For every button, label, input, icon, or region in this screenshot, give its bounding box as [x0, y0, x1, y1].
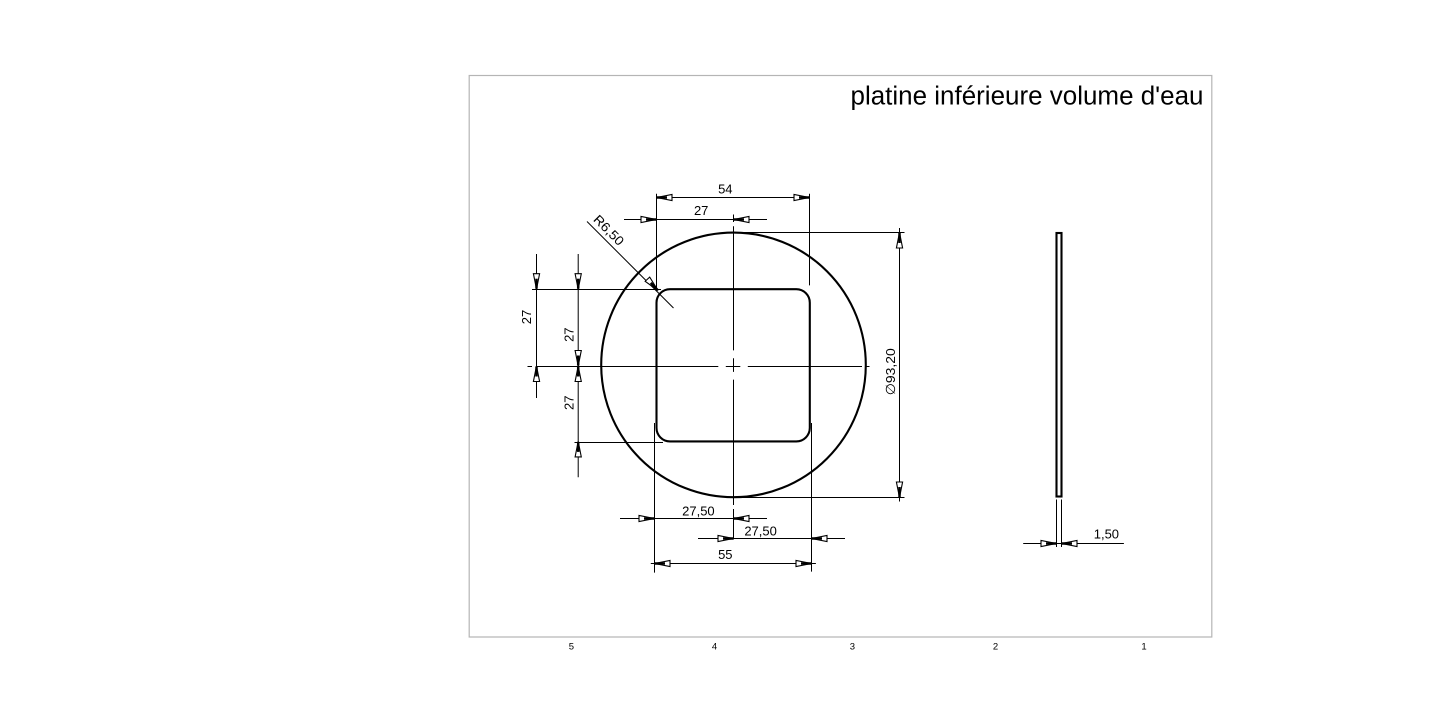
svg-text:5: 5	[569, 642, 574, 653]
svg-text:54: 54	[718, 182, 732, 197]
svg-text:27: 27	[562, 327, 577, 341]
svg-text:platine inférieure volume d'ea: platine inférieure volume d'eau	[851, 83, 1204, 111]
svg-text:1: 1	[1141, 642, 1146, 653]
svg-text:55: 55	[718, 547, 732, 562]
svg-text:4: 4	[712, 642, 717, 653]
svg-text:27: 27	[519, 310, 534, 324]
svg-text:1,50: 1,50	[1094, 527, 1119, 542]
svg-text:∅93,20: ∅93,20	[883, 348, 898, 395]
svg-text:2: 2	[993, 642, 998, 653]
svg-text:27,50: 27,50	[744, 524, 777, 539]
svg-text:27: 27	[562, 396, 577, 410]
svg-text:27: 27	[694, 203, 708, 218]
svg-text:3: 3	[850, 642, 855, 653]
svg-text:27,50: 27,50	[682, 504, 715, 519]
